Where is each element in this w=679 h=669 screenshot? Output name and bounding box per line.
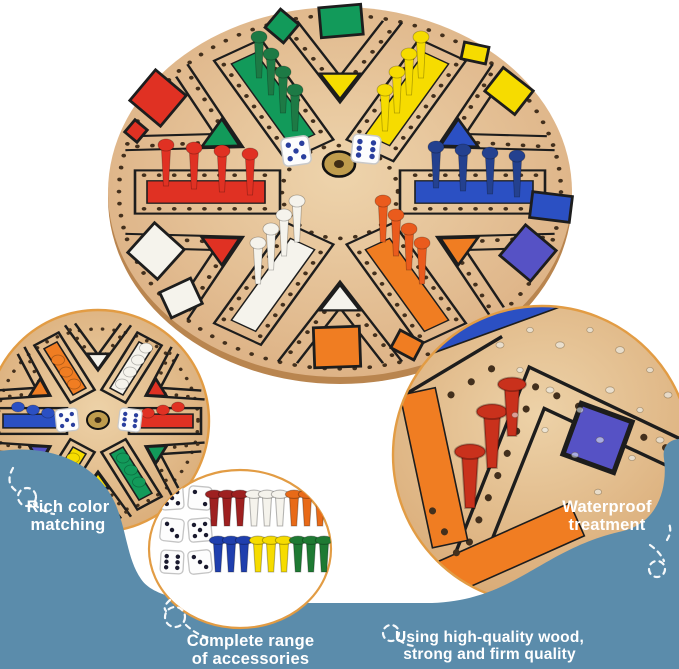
caption-line: matching [2,516,134,534]
accessory-die [187,549,212,574]
scene-graphic [0,0,679,669]
accessory-pegs-bottom-row [209,536,332,572]
accessory-die [188,518,213,543]
caption-waterproof: Waterproof treatment [538,498,676,534]
caption-line: Using high-quality wood, [372,629,607,646]
accessory-pegs-top-row [205,490,328,526]
product-image: Rich color matching Waterproof treatment… [0,0,679,669]
green-rim-square [319,4,363,38]
accessories-circle [149,470,333,628]
caption-line: Complete range [158,632,343,650]
caption-line: Waterproof [538,498,676,516]
accessory-die [159,517,184,542]
caption-line: Rich color [2,498,134,516]
caption-accessories: Complete range of accessories [158,632,343,668]
blue-rim-square [530,192,573,223]
caption-line: strong and firm quality [372,646,607,663]
caption-line: of accessories [158,650,343,668]
caption-rich-color: Rich color matching [2,498,134,534]
small-yellow-square [461,42,489,64]
caption-line: treatment [538,516,676,534]
board-die [351,134,382,165]
inset-die [55,408,80,433]
caption-quality: Using high-quality wood, strong and firm… [372,629,607,663]
inset-die [118,408,143,433]
orange-rim-square [313,326,360,368]
board-die [280,135,312,167]
center-hole [323,152,355,177]
accessory-die [160,550,184,574]
inset-center-hole [87,411,109,429]
